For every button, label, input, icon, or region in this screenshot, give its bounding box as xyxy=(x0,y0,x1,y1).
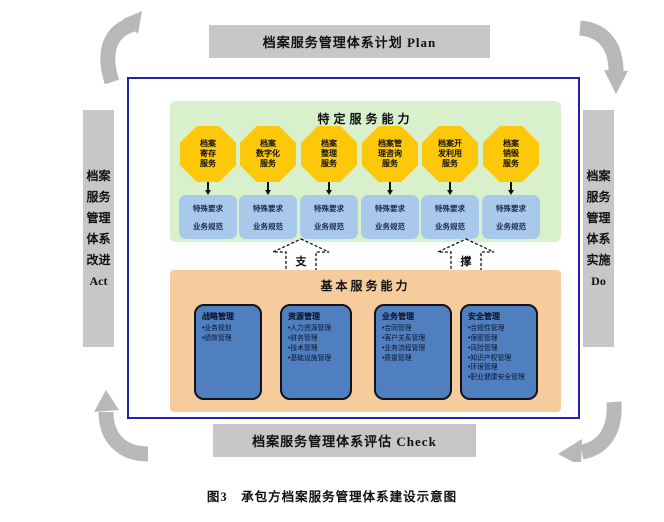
group-item: 基础设施管理 xyxy=(288,354,346,364)
norm-label: 业务规范 xyxy=(193,221,223,232)
norm-label: 业务规范 xyxy=(435,221,465,232)
group-item: 技术管理 xyxy=(288,344,346,354)
basic-capability-panel: 基本服务能力 战略管理 业务规划 绩效管理 资源管理 人力资源管理 财务管理 技… xyxy=(170,270,561,412)
requirement-box: 特殊要求 业务规范 xyxy=(179,195,237,239)
service-column: 档案开 发利用 服务 特殊要求 业务规范 xyxy=(420,101,480,242)
figure-canvas: 档案服务管理体系计划 Plan 档案 服务 管理 体系 实施 Do 档案服务管理… xyxy=(0,0,664,522)
group-item: 知识产权管理 xyxy=(468,354,532,364)
service-octagon-development: 档案开 发利用 服务 xyxy=(422,126,478,182)
group-item: 保密管理 xyxy=(468,334,532,344)
service-column: 档案 销毁 服务 特殊要求 业务规范 xyxy=(481,101,541,242)
requirement-box: 特殊要求 业务规范 xyxy=(239,195,297,239)
service-column: 档案 寄存 服务 特殊要求 业务规范 xyxy=(178,101,238,242)
support-char-left: 支 xyxy=(272,253,330,269)
service-column: 档案 数字化 服务 特殊要求 业务规范 xyxy=(238,101,298,242)
requirement-label: 特殊要求 xyxy=(375,203,405,214)
service-column: 档案管 理咨询 服务 特殊要求 业务规范 xyxy=(360,101,420,242)
support-char-right: 撑 xyxy=(437,253,495,269)
group-item-list: 人力资源管理 财务管理 技术管理 基础设施管理 xyxy=(288,324,346,363)
group-item: 环境管理 xyxy=(468,363,532,373)
service-octagon-arrangement: 档案 整理 服务 xyxy=(301,126,357,182)
service-octagon-digitization: 档案 数字化 服务 xyxy=(240,126,296,182)
cycle-arrow-act-to-plan xyxy=(94,8,156,84)
service-octagon-consulting: 档案管 理咨询 服务 xyxy=(362,126,418,182)
requirement-label: 特殊要求 xyxy=(314,203,344,214)
group-box-strategy: 战略管理 业务规划 绩效管理 xyxy=(194,304,262,400)
requirement-label: 特殊要求 xyxy=(496,203,526,214)
norm-label: 业务规范 xyxy=(253,221,283,232)
group-item-list: 合同管理 客户关系管理 业务流程管理 质量管理 xyxy=(382,324,446,363)
group-item-list: 业务规划 绩效管理 xyxy=(202,324,256,344)
group-item: 财务管理 xyxy=(288,334,346,344)
basic-capability-title: 基本服务能力 xyxy=(170,277,561,294)
requirement-box: 特殊要求 业务规范 xyxy=(300,195,358,239)
norm-label: 业务规范 xyxy=(375,221,405,232)
figure-caption: 图3 承包方档案服务管理体系建设示意图 xyxy=(0,486,664,505)
group-item: 合规性管理 xyxy=(468,324,532,334)
group-item: 人力资源管理 xyxy=(288,324,346,334)
group-item: 职业健康安全管理 xyxy=(468,373,532,383)
group-box-resources: 资源管理 人力资源管理 财务管理 技术管理 基础设施管理 xyxy=(280,304,352,400)
requirement-box: 特殊要求 业务规范 xyxy=(421,195,479,239)
requirement-label: 特殊要求 xyxy=(435,203,465,214)
norm-label: 业务规范 xyxy=(496,221,526,232)
group-item: 业务规划 xyxy=(202,324,256,334)
requirement-label: 特殊要求 xyxy=(193,203,223,214)
support-arrow-left: 支 xyxy=(272,238,330,272)
pdca-check-bar: 档案服务管理体系评估 Check xyxy=(213,424,476,457)
pdca-do-bar: 档案 服务 管理 体系 实施 Do xyxy=(583,110,614,347)
support-arrow-right: 撑 xyxy=(437,238,495,272)
pdca-act-bar: 档案 服务 管理 体系 改进 Act xyxy=(83,110,114,347)
group-title: 战略管理 xyxy=(202,311,256,322)
group-title: 安全管理 xyxy=(468,311,532,322)
service-octagon-destruction: 档案 销毁 服务 xyxy=(483,126,539,182)
group-item: 风险管理 xyxy=(468,344,532,354)
group-item: 绩效管理 xyxy=(202,334,256,344)
group-title: 业务管理 xyxy=(382,311,446,322)
management-system-box: 特定服务能力 档案 寄存 服务 特殊要求 业务规范 档案 数字化 服务 特殊要求… xyxy=(127,77,580,419)
group-item: 客户关系管理 xyxy=(382,334,446,344)
requirement-box: 特殊要求 业务规范 xyxy=(482,195,540,239)
group-box-security: 安全管理 合规性管理 保密管理 风险管理 知识产权管理 环境管理 职业健康安全管… xyxy=(460,304,538,400)
group-item-list: 合规性管理 保密管理 风险管理 知识产权管理 环境管理 职业健康安全管理 xyxy=(468,324,532,383)
group-item: 质量管理 xyxy=(382,354,446,364)
requirement-box: 特殊要求 业务规范 xyxy=(361,195,419,239)
group-item: 业务流程管理 xyxy=(382,344,446,354)
service-octagon-deposit: 档案 寄存 服务 xyxy=(180,126,236,182)
pdca-plan-bar: 档案服务管理体系计划 Plan xyxy=(209,25,490,58)
group-box-business: 业务管理 合同管理 客户关系管理 业务流程管理 质量管理 xyxy=(374,304,452,400)
requirement-label: 特殊要求 xyxy=(253,203,283,214)
norm-label: 业务规范 xyxy=(314,221,344,232)
group-title: 资源管理 xyxy=(288,311,346,322)
service-column: 档案 整理 服务 特殊要求 业务规范 xyxy=(299,101,359,242)
specific-capability-panel: 特定服务能力 档案 寄存 服务 特殊要求 业务规范 档案 数字化 服务 特殊要求… xyxy=(170,101,561,242)
group-item: 合同管理 xyxy=(382,324,446,334)
